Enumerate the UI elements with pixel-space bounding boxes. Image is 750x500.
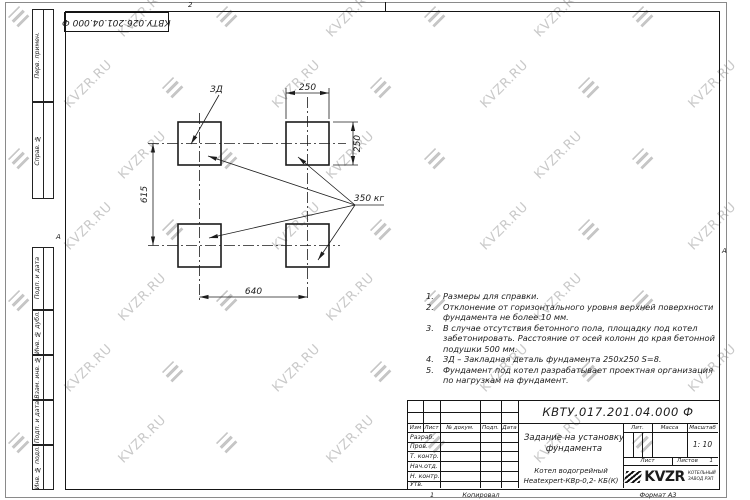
note-item: 2. Отклонение от горизонтального уровня … <box>426 302 718 323</box>
product-line-2: Heatexpert-КВр-0,2- КБ(К) <box>524 477 619 486</box>
margin-block-podp-data-2: Подп. и дата <box>32 400 54 445</box>
rev-col-list: Лист <box>423 423 440 432</box>
margin-label: Подп. и дата <box>34 257 41 299</box>
company-tagline: КОТЕЛЬНЫЙ ЗАВОД РЭП <box>688 471 716 481</box>
note-text: Фундамент под котел разрабатывает проект… <box>443 365 718 386</box>
product-line-1: Котел водогрейный <box>534 467 608 476</box>
rev-col-data: Дата <box>501 423 518 432</box>
note-number: 3. <box>426 323 443 355</box>
rev-col-docnum: № докум. <box>440 423 480 432</box>
note-number: 4. <box>426 354 443 365</box>
title-block-doc-number: КВТУ.017.201.04.000 Ф <box>518 401 718 423</box>
note-number: 5. <box>426 365 443 386</box>
margin-label: Перв. примен. <box>34 32 41 78</box>
rev-col-izm: Изм <box>408 423 423 432</box>
sig-row-prov: Пров. <box>410 442 428 451</box>
margin-block-podp-data-1: Подп. и дата <box>32 247 54 310</box>
margin-label: Инв. № подл. <box>34 446 41 489</box>
sheets-value: 1 <box>709 458 713 464</box>
sig-row-nkontr: Н. контр. <box>410 471 440 481</box>
margin-block-perv-primen: Перв. примен. <box>32 9 54 102</box>
scale-label: Масштаб <box>687 423 718 432</box>
fold-mark <box>385 2 386 11</box>
scale-value: 1: 10 <box>687 432 718 457</box>
note-item: 5. Фундамент под котел разрабатывает про… <box>426 365 718 386</box>
note-item: 1. Размеры для справки. <box>426 291 718 302</box>
mass-label: Масса <box>652 423 687 432</box>
sig-row-nachotd: Нач.отд. <box>410 461 438 471</box>
notes-list: 1. Размеры для справки. 2. Отклонение от… <box>426 291 718 386</box>
corner-stamp-number: КВТУ.026.201.04.000 Ф <box>62 17 171 27</box>
zone-number-top: 2 <box>188 1 192 9</box>
sig-row-tkontr: Т. контр. <box>410 451 439 461</box>
format-label: Формат А3 <box>622 491 694 499</box>
note-item: 4. ЗД – Закладная деталь фундамента 250х… <box>426 354 718 365</box>
margin-block-inv-podl: Инв. № подл. <box>32 445 54 490</box>
margin-block-inv-dubl: Инв. № дубл. <box>32 310 54 355</box>
note-text: Отклонение от горизонтального уровня вер… <box>443 302 718 323</box>
margin-label: Подп. и дата <box>34 401 41 443</box>
sheet-label: Лист <box>623 457 672 465</box>
note-number: 2. <box>426 302 443 323</box>
sig-row-utv: Утв. <box>410 481 423 488</box>
title-block: Изм Лист № докум. Подп. Дата Разраб. Про… <box>407 400 720 490</box>
tagline-line-2: ЗАВОД РЭП <box>688 477 716 482</box>
note-number: 1. <box>426 291 443 302</box>
copied-label: Копировал <box>450 491 512 499</box>
margin-label: Взам. инв. № <box>34 356 41 399</box>
zone-letter-right: А <box>722 247 727 255</box>
kvzr-logo-text: KVZR <box>644 469 685 485</box>
kvzr-logo-icon <box>624 471 643 483</box>
margin-label: Справ. № <box>34 135 41 166</box>
margin-label: Инв. № дубл. <box>34 311 41 354</box>
zone-letter-left: А <box>56 233 61 241</box>
company-cell: KVZR КОТЕЛЬНЫЙ ЗАВОД РЭП <box>623 465 718 488</box>
zone-number-bottom: 1 <box>430 491 434 499</box>
margin-block-sprav-no: Справ. № <box>32 102 54 199</box>
drawing-sheet: KVZR.RUKVZR.RUKVZR.RUKVZR.RUKVZR.RUKVZR.… <box>0 0 750 500</box>
sheets-cell: Листов 1 <box>672 457 718 465</box>
sig-row-razrab: Разраб. <box>410 432 434 442</box>
note-text: ЗД – Закладная деталь фундамента 250х250… <box>443 354 718 365</box>
title-block-doc-title: Задание на установку фундамента <box>519 423 629 465</box>
note-text: В случае отсутствия бетонного пола, площ… <box>443 323 718 355</box>
rev-col-podp: Подп. <box>480 423 501 432</box>
title-block-product: Котел водогрейный Heatexpert-КВр-0,2- КБ… <box>519 465 623 488</box>
lit-label: Лит. <box>623 423 652 432</box>
margin-block-vzam-inv: Взам. инв. № <box>32 355 54 400</box>
note-text: Размеры для справки. <box>443 291 718 302</box>
note-item: 3. В случае отсутствия бетонного пола, п… <box>426 323 718 355</box>
corner-stamp: КВТУ.026.201.04.000 Ф <box>64 12 169 32</box>
sheets-label: Листов <box>677 458 698 464</box>
